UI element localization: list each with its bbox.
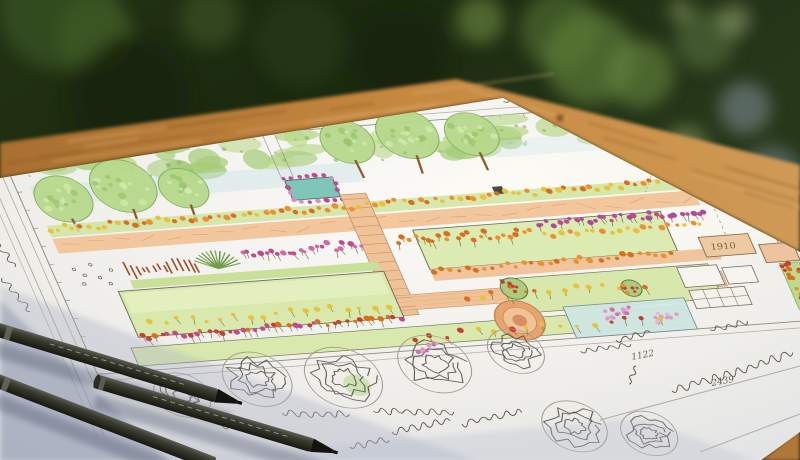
wood-knot: [556, 114, 564, 122]
bokeh-blob: [719, 82, 771, 134]
pond: [285, 177, 341, 200]
bokeh-blob: [719, 4, 751, 36]
bokeh-blob: [256, 0, 344, 86]
photo-canvas: 1910 1122 2439: [0, 0, 800, 460]
photo-of-garden-plan: 1910 1122 2439: [0, 0, 800, 460]
bokeh-blob: [606, 40, 674, 108]
shed-number-label: 1910: [709, 241, 738, 252]
